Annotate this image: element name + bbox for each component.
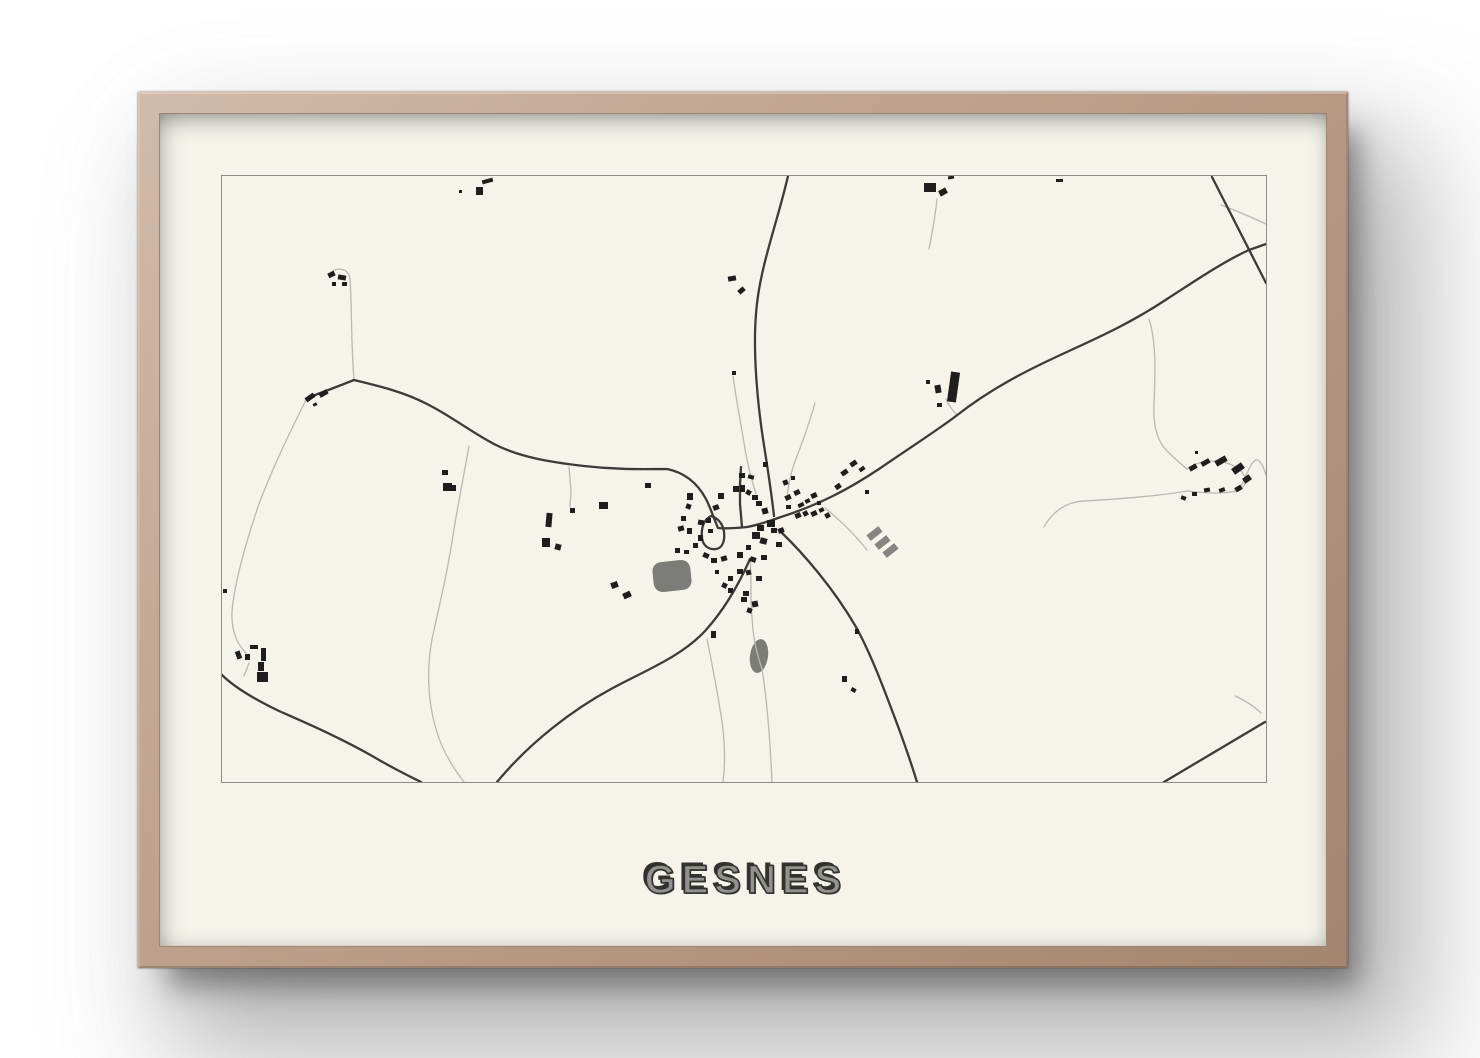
town-map-svg	[222, 176, 1266, 782]
wall-background: GESNES	[0, 0, 1480, 1058]
map-panel	[221, 175, 1267, 783]
poster-title: GESNES	[159, 858, 1327, 903]
poster-matte: GESNES	[159, 113, 1327, 947]
poster-frame: GESNES	[138, 92, 1348, 968]
